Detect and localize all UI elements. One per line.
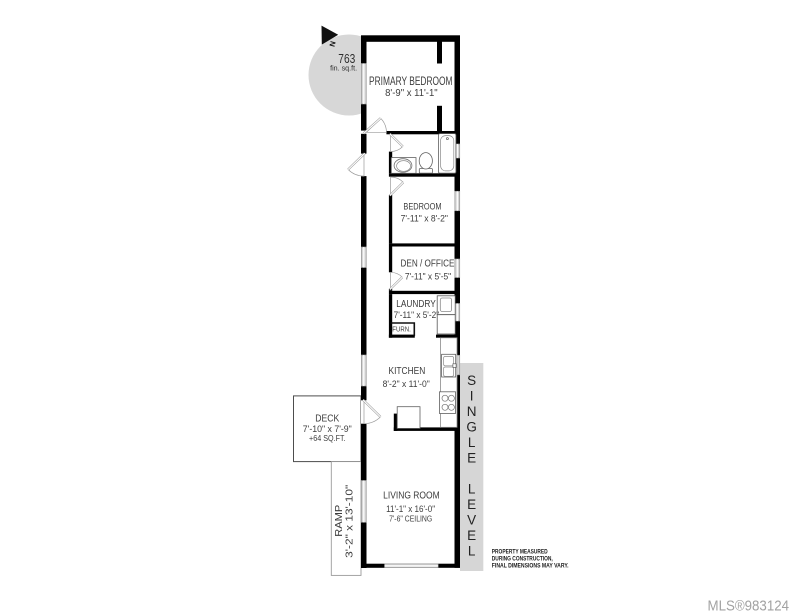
svg-text:RAMP: RAMP xyxy=(333,505,345,537)
svg-text:LAUNDRY: LAUNDRY xyxy=(396,299,436,310)
svg-text:8'-2" x 11'-0": 8'-2" x 11'-0" xyxy=(383,379,430,389)
svg-text:FURN.: FURN. xyxy=(392,326,411,333)
svg-text:L: L xyxy=(468,543,476,558)
svg-text:E: E xyxy=(467,450,476,465)
svg-text:7'-10" x 7'-9": 7'-10" x 7'-9" xyxy=(303,424,352,434)
svg-text:11'-1" x 16'-0": 11'-1" x 16'-0" xyxy=(386,504,435,514)
svg-text:E: E xyxy=(467,528,476,543)
svg-text:PROPERTY MEASURED: PROPERTY MEASURED xyxy=(492,548,548,555)
svg-text:LIVING ROOM: LIVING ROOM xyxy=(383,489,440,501)
svg-text:PRIMARY BEDROOM: PRIMARY BEDROOM xyxy=(369,76,453,88)
svg-text:8'-9" x 11'-1": 8'-9" x 11'-1" xyxy=(385,88,438,99)
svg-text:DECK: DECK xyxy=(315,413,339,425)
svg-text:KITCHEN: KITCHEN xyxy=(389,366,426,377)
svg-text:I: I xyxy=(470,388,474,403)
svg-text:+64 SQ.FT.: +64 SQ.FT. xyxy=(309,434,346,443)
svg-text:N: N xyxy=(467,404,477,419)
svg-text:FINAL DIMENSIONS MAY VARY.: FINAL DIMENSIONS MAY VARY. xyxy=(492,563,569,570)
svg-text:DEN / OFFICE: DEN / OFFICE xyxy=(401,259,455,270)
svg-text:V: V xyxy=(467,512,476,527)
svg-text:7'-11" x 5'-5": 7'-11" x 5'-5" xyxy=(405,272,451,282)
svg-text:7'-11" x 8'-2": 7'-11" x 8'-2" xyxy=(401,214,448,224)
svg-text:7'-6" CEILING: 7'-6" CEILING xyxy=(389,515,432,524)
svg-text:E: E xyxy=(467,497,476,512)
svg-text:MLS®983124: MLS®983124 xyxy=(708,597,790,612)
svg-text:G: G xyxy=(466,419,477,434)
svg-text:7'-11" x 5'-2": 7'-11" x 5'-2" xyxy=(394,310,440,320)
svg-text:DURING CONSTRUCTION,: DURING CONSTRUCTION, xyxy=(492,556,553,563)
svg-text:fin. sq.ft.: fin. sq.ft. xyxy=(330,63,357,72)
svg-text:L: L xyxy=(468,481,476,496)
svg-text:S: S xyxy=(467,373,476,388)
svg-text:BEDROOM: BEDROOM xyxy=(403,202,441,213)
svg-text:L: L xyxy=(468,435,476,450)
svg-text:3'-2" x 13'-10": 3'-2" x 13'-10" xyxy=(345,484,356,558)
